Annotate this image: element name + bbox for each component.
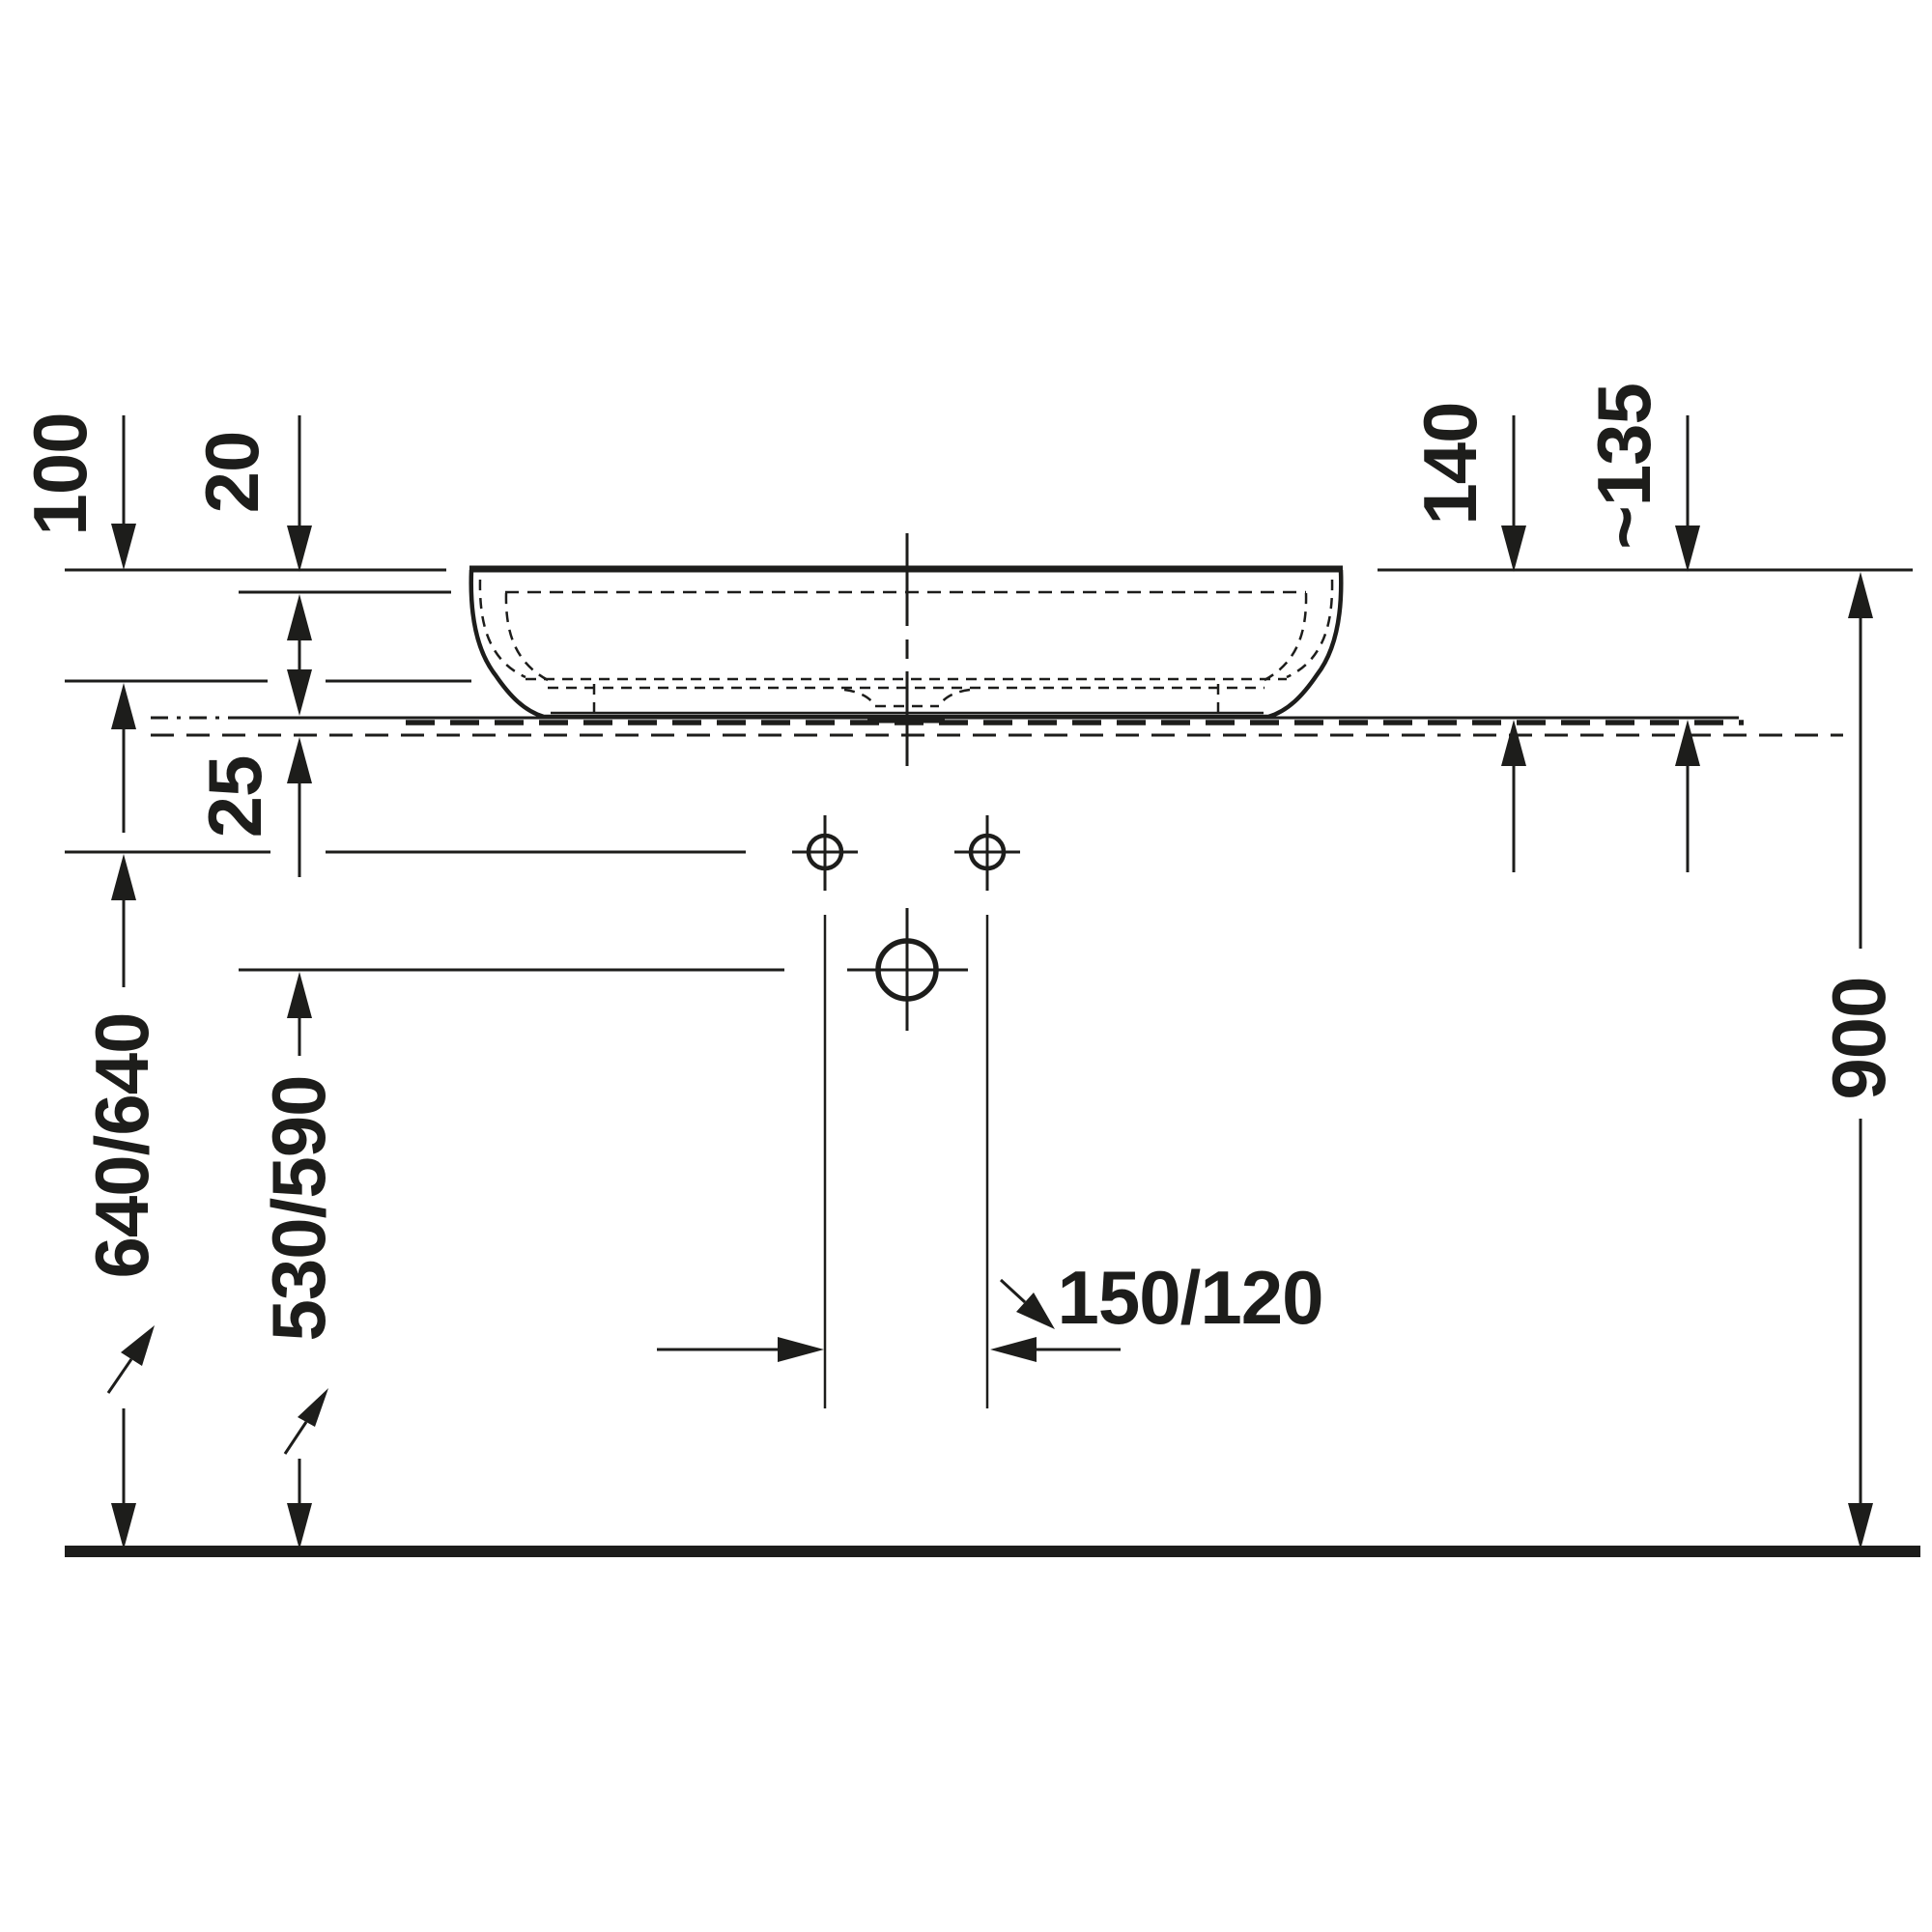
dim-530-arrow-up-icon <box>287 972 312 1018</box>
dim-900-arrow-up-icon <box>1848 572 1873 618</box>
dim-640-arrow-down-icon <box>111 1503 136 1549</box>
dim-20-arrow-up-icon <box>287 594 312 640</box>
dim-900-arrow-down-icon <box>1848 1503 1873 1549</box>
dim-135-arrow-down-icon <box>1675 526 1700 572</box>
dim-150-arrow-left-icon <box>990 1337 1037 1362</box>
dim-label-faucet-hole-height: 640/640 <box>79 1013 164 1279</box>
dim-label-rim-height: 900 <box>1816 977 1901 1099</box>
dim-100-arrow-down-icon <box>111 524 136 570</box>
drawing-canvas: 100 20 25 140 ~135 640/640 530/590 900 1… <box>0 0 1932 1932</box>
dim-label-counter-offset: 25 <box>192 756 277 838</box>
faucet-holes <box>792 815 1020 1408</box>
dim-label-mixer-hole-height: 530/590 <box>256 1076 341 1342</box>
dim-label-faucet-spacing: 150/120 <box>1058 1255 1323 1340</box>
dim-20-arrow-down-icon <box>287 526 312 572</box>
dim-150-arrow-right-icon <box>778 1337 824 1362</box>
dim-640-diagonal-arrow-icon <box>121 1325 155 1366</box>
basin-inner-wall-right-inner <box>1264 593 1306 680</box>
dim-530-arrow-down-icon <box>287 1503 312 1549</box>
dim-25-arrow-down-icon <box>287 669 312 716</box>
basin-inner-wall-left-inner <box>506 593 548 680</box>
dim-label-rim-thickness: 20 <box>189 432 274 514</box>
dim-label-basin-height: 140 <box>1407 402 1492 525</box>
dim-25-arrow-up-icon <box>287 737 312 783</box>
dim-150-diagonal-line <box>1001 1280 1025 1302</box>
dim-135-arrow-up-icon <box>1675 720 1700 766</box>
dim-530-diagonal-line <box>285 1422 306 1454</box>
drain-recess-right <box>939 690 970 706</box>
dimension-lines <box>108 415 1873 1549</box>
dim-530-diagonal-arrow-icon <box>298 1388 328 1427</box>
dim-140-arrow-down-icon <box>1501 526 1526 572</box>
dim-640-arrow-up-icon <box>111 854 136 900</box>
technical-drawing: 100 20 25 140 ~135 640/640 530/590 900 1… <box>0 0 1932 1932</box>
dim-label-bowl-depth: 100 <box>17 412 102 535</box>
dim-140-arrow-up-icon <box>1501 720 1526 766</box>
dim-label-height-installed: ~135 <box>1581 384 1666 550</box>
dim-100-arrow-up-icon <box>111 683 136 729</box>
drain-recess-left <box>844 690 875 706</box>
dim-640-diagonal-line <box>108 1359 131 1393</box>
reference-lines <box>65 570 1913 970</box>
